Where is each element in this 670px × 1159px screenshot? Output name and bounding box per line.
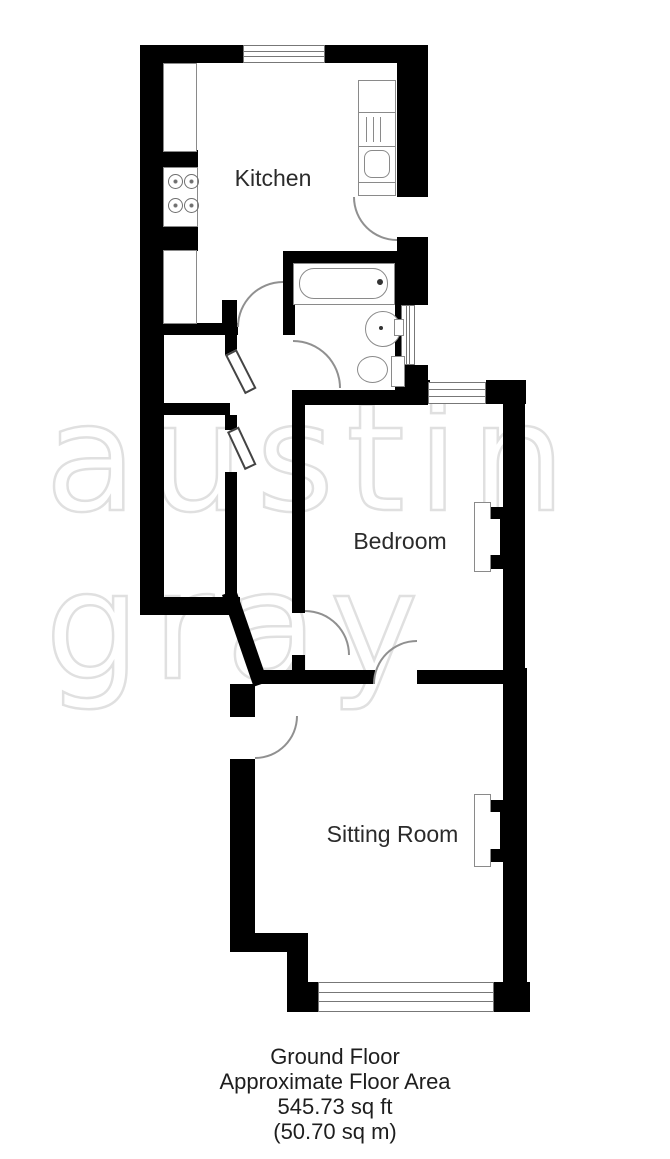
wall-bathroom-bottom — [292, 390, 428, 405]
caption-line-area-title: Approximate Floor Area — [0, 1069, 670, 1094]
drainer-line — [366, 117, 367, 142]
hob-burner-icon — [184, 174, 199, 189]
sink-unit-divider — [359, 112, 395, 113]
wall-stub-kitchen-exit — [222, 300, 237, 325]
toilet-cistern-fixture — [391, 356, 405, 387]
basin-tap-block — [394, 319, 404, 336]
wall-sitting-right — [503, 668, 527, 1012]
basin-plug-icon — [379, 326, 383, 330]
wall-sitting-left — [230, 759, 255, 952]
wall-stove-stub-bottom — [163, 226, 198, 251]
door-arc-bathroom — [293, 340, 341, 388]
caption-line-area-sqm: (50.70 sq m) — [0, 1119, 670, 1144]
room-label-bedroom: Bedroom — [350, 528, 450, 555]
drainer-line — [380, 117, 381, 142]
sink-unit-divider — [359, 182, 395, 183]
wall-sitting-bottom-left — [287, 982, 320, 1012]
wall-stove-stub-top — [163, 150, 198, 168]
room-label-sitting-room: Sitting Room — [325, 821, 460, 848]
sink-bowl-fixture — [364, 150, 390, 178]
cupboard-fixture — [163, 250, 197, 324]
wall-bedroom-left — [292, 398, 305, 613]
floor-area-caption: Ground Floor Approximate Floor Area 545.… — [0, 1044, 670, 1144]
toilet-bowl-fixture — [357, 356, 388, 383]
window-kitchen-top — [243, 45, 325, 63]
hob-burner-icon — [184, 198, 199, 213]
window-bedroom-top — [428, 382, 486, 404]
wall-sitting-top-left — [255, 670, 375, 684]
wall-hall-vertical — [225, 472, 237, 599]
drainer-line — [373, 117, 374, 142]
hob-burner-icon — [168, 174, 183, 189]
wall-sitting-step-h — [230, 933, 308, 952]
wall-kitchen-right-upper — [397, 45, 428, 197]
window-sitting-bottom — [318, 982, 494, 1012]
sink-unit-divider — [359, 146, 395, 147]
door-arc-kitchen-side — [353, 197, 397, 241]
sink-unit-fixture — [358, 80, 396, 196]
wall-sitting-left-upper — [230, 684, 255, 717]
room-label-kitchen: Kitchen — [223, 165, 323, 192]
bath-inner — [299, 268, 388, 299]
door-arc-kitchen-hall — [237, 281, 283, 327]
caption-line-area-sqft: 545.73 sq ft — [0, 1094, 670, 1119]
wall-bedroom-right — [503, 380, 525, 684]
fireplace-opening-bedroom — [489, 519, 500, 555]
wall-bathroom-right-upper — [395, 251, 428, 305]
floor-plan: austin gray — [0, 0, 670, 1159]
hob-burner-icon — [168, 198, 183, 213]
door-arc-sitting-entrance — [255, 716, 298, 759]
bath-tap-icon — [377, 279, 383, 285]
caption-line-floor: Ground Floor — [0, 1044, 670, 1069]
fireplace-opening-sitting — [489, 812, 500, 849]
worktop-left-fixture — [163, 63, 197, 152]
wall-hall-b — [160, 403, 230, 415]
